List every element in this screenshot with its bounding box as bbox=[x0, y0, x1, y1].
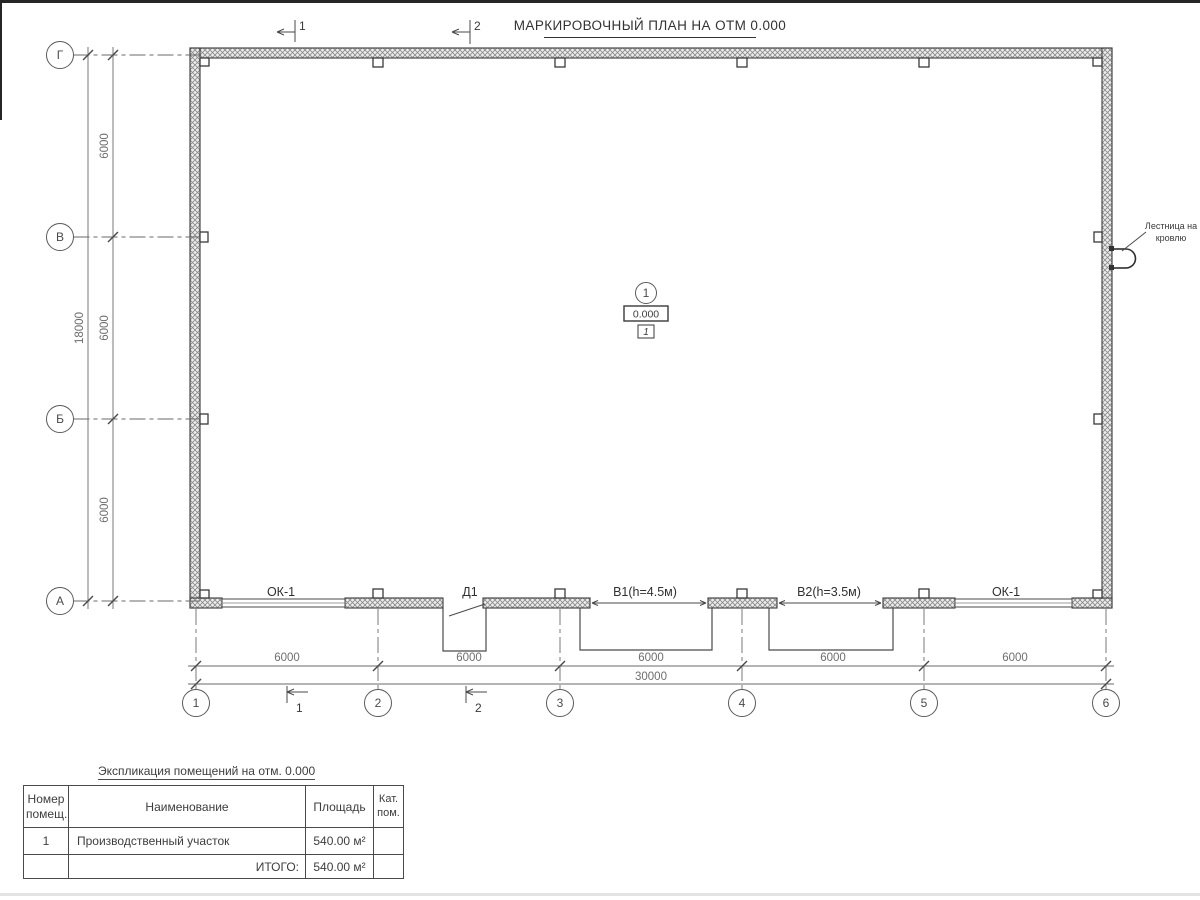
section-mark-2-top-label: 2 bbox=[474, 19, 481, 33]
dim-left-seg-3: 6000 bbox=[99, 497, 111, 523]
axis-label-2: 2 bbox=[375, 696, 382, 710]
section-mark-1-top: 1 bbox=[277, 19, 306, 42]
schedule-row-1: 1 Производственный участок 540.00 м² bbox=[24, 828, 404, 855]
dim-bottom-seg-3: 6000 bbox=[638, 652, 664, 664]
drawing-title: МАРКИРОВОЧНЫЙ ПЛАН НА ОТМ 0.000 bbox=[514, 18, 786, 33]
dim-bottom-seg-2: 6000 bbox=[456, 652, 482, 664]
total-category-cell bbox=[374, 855, 404, 879]
drawing-sheet: МАРКИРОВОЧНЫЙ ПЛАН НА ОТМ 0.000 bbox=[0, 0, 1200, 900]
bottom-dimensions: 6000 6000 6000 6000 6000 30000 bbox=[188, 652, 1114, 689]
room-number: 1 bbox=[643, 286, 650, 300]
room-area-cell: 540.00 м² bbox=[306, 828, 374, 855]
room-category-cell bbox=[374, 828, 404, 855]
dim-left-total: 18000 bbox=[74, 312, 86, 344]
axis-label-g: Г bbox=[57, 48, 64, 62]
section-mark-1-top-label: 1 bbox=[299, 19, 306, 33]
window-edge-bottom bbox=[0, 893, 1200, 896]
section-mark-1-bottom-label: 1 bbox=[296, 701, 303, 715]
dim-bottom-seg-5: 6000 bbox=[1002, 652, 1028, 664]
label-window-ok1-left: ОК-1 bbox=[267, 585, 295, 599]
window-ok1-right bbox=[955, 599, 1072, 607]
room-schedule: Экспликация помещений на отм. 0.000 Номе… bbox=[23, 762, 403, 879]
schedule-table: Номер помещ. Наименование Площадь Кат. п… bbox=[23, 785, 404, 879]
label-gate-v2: В2(h=3.5м) bbox=[797, 585, 861, 599]
label-gate-v1: В1(h=4.5м) bbox=[613, 585, 677, 599]
ladder-note-line1: Лестница на bbox=[1145, 221, 1197, 231]
axis-label-6: 6 bbox=[1103, 696, 1110, 710]
section-mark-2-top: 2 bbox=[452, 19, 481, 44]
dim-bottom-seg-1: 6000 bbox=[274, 652, 300, 664]
section-mark-1-bottom: 1 bbox=[287, 686, 308, 715]
section-mark-2-bottom: 2 bbox=[466, 686, 487, 715]
window-edge-left bbox=[0, 0, 2, 120]
window-edge-top bbox=[0, 0, 1200, 3]
header-room-number: Номер помещ. bbox=[24, 786, 69, 828]
axis-label-v: В bbox=[56, 230, 64, 244]
axis-label-3: 3 bbox=[557, 696, 564, 710]
floor-plan-drawing: МАРКИРОВОЧНЫЙ ПЛАН НА ОТМ 0.000 bbox=[0, 0, 1200, 760]
window-ok1-left bbox=[222, 599, 345, 607]
room-number-cell: 1 bbox=[24, 828, 69, 855]
dim-bottom-seg-4: 6000 bbox=[820, 652, 846, 664]
header-name: Наименование bbox=[69, 786, 306, 828]
dim-left-seg-1: 6000 bbox=[99, 133, 111, 159]
header-category: Кат. пом. bbox=[374, 786, 404, 828]
room-marker: 1 0.000 1 bbox=[624, 283, 668, 339]
elevation-value: 0.000 bbox=[633, 309, 659, 321]
ladder-cage-arc bbox=[1126, 249, 1136, 268]
roof-ladder: Лестница на кровлю bbox=[1109, 221, 1197, 270]
room-type-tag: 1 bbox=[643, 327, 649, 338]
building-walls bbox=[190, 48, 1112, 608]
header-area: Площадь bbox=[306, 786, 374, 828]
label-window-ok1-right: ОК-1 bbox=[992, 585, 1020, 599]
left-dimensions: 6000 6000 6000 18000 bbox=[74, 47, 118, 609]
room-name-cell: Производственный участок bbox=[69, 828, 306, 855]
gate-v2 bbox=[769, 601, 893, 651]
ladder-note-line2: кровлю bbox=[1156, 233, 1187, 243]
total-empty-cell bbox=[24, 855, 69, 879]
total-area-cell: 540.00 м² bbox=[306, 855, 374, 879]
schedule-header-row: Номер помещ. Наименование Площадь Кат. п… bbox=[24, 786, 404, 828]
dim-left-seg-2: 6000 bbox=[99, 315, 111, 341]
section-mark-2-bottom-label: 2 bbox=[475, 701, 482, 715]
axis-label-a: А bbox=[56, 594, 64, 608]
axis-label-5: 5 bbox=[921, 696, 928, 710]
schedule-total-row: ИТОГО: 540.00 м² bbox=[24, 855, 404, 879]
label-door-d1: Д1 bbox=[462, 585, 477, 599]
dim-bottom-total: 30000 bbox=[635, 671, 667, 683]
schedule-title: Экспликация помещений на отм. 0.000 bbox=[98, 764, 315, 780]
row-axes: Г В Б А bbox=[47, 42, 201, 615]
column-markers bbox=[200, 58, 1102, 598]
door-d1 bbox=[443, 604, 486, 651]
gate-v1 bbox=[580, 601, 712, 651]
axis-label-1: 1 bbox=[193, 696, 200, 710]
axis-label-4: 4 bbox=[739, 696, 746, 710]
ladder-leader-line bbox=[1122, 232, 1146, 251]
total-label-cell: ИТОГО: bbox=[69, 855, 306, 879]
axis-label-b: Б bbox=[56, 412, 64, 426]
